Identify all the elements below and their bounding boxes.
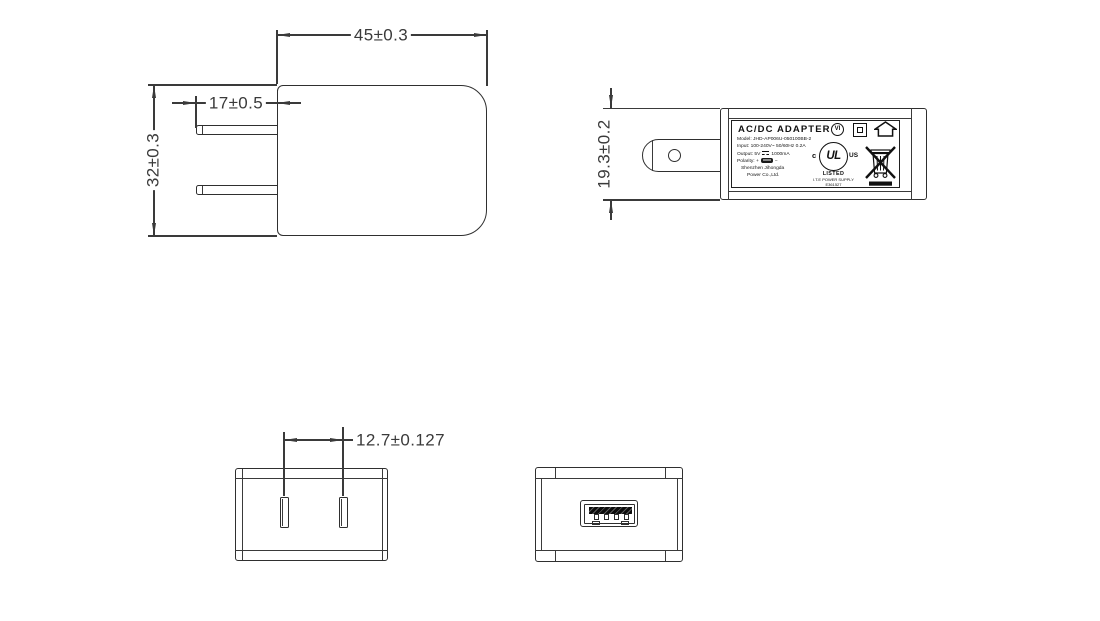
- label-company-line2: Power Co.,Ltd.: [747, 173, 779, 178]
- dimension-text: 12.7±0.127: [353, 432, 448, 449]
- arrowhead-up-icon: [609, 200, 613, 213]
- extension-line: [148, 84, 277, 85]
- case-edge-line: [728, 191, 911, 192]
- extension-line: [283, 432, 284, 496]
- adapter-body-outline: [277, 85, 487, 236]
- arrowhead-right-icon: [330, 438, 343, 442]
- extension-line: [486, 30, 487, 86]
- usb-shell-tab: [592, 521, 600, 525]
- side-prong: [642, 139, 721, 172]
- arrowhead-down-icon: [609, 95, 613, 108]
- right-pin-blade: [339, 497, 348, 528]
- usb-pin: [614, 514, 620, 520]
- upper-prong: [196, 125, 278, 135]
- ul-c-text: c: [812, 151, 816, 160]
- cap-notch: [555, 468, 556, 479]
- upper-prong-tip-line: [202, 126, 203, 134]
- usb-shell-tab: [621, 521, 629, 525]
- left-pin-blade: [280, 497, 289, 528]
- ul-file-number: E361527: [815, 182, 852, 187]
- dimension-text: 45±0.3: [351, 27, 411, 44]
- label-model-line: Model: JHD-AP006U-050100BB-2: [737, 137, 811, 142]
- extension-line: [276, 30, 277, 84]
- dimension-text: 32±0.3: [144, 130, 161, 190]
- prong-cap-seam: [652, 140, 653, 171]
- blade-edge-line: [341, 499, 342, 527]
- end-cap-line: [235, 550, 388, 551]
- label-company-line1: Shenzhen Jihongda: [741, 166, 784, 171]
- weee-bin-icon: [862, 143, 899, 187]
- dc-symbol-icon: [762, 151, 769, 155]
- arrowhead-left-icon: [284, 438, 297, 442]
- arrowhead-right-icon: [474, 33, 487, 37]
- cap-notch: [665, 468, 666, 479]
- rating-label: AC/DC ADAPTER Model: JHD-AP006U-050100BB…: [731, 120, 900, 188]
- polarity-plus: +: [756, 158, 759, 163]
- case-seam: [382, 469, 383, 560]
- ul-us-text: US: [849, 152, 858, 159]
- label-input-line: Input: 100-240V~ 50/60Hz 0.2A: [737, 144, 806, 149]
- label-output-prefix: Output: 5V: [737, 152, 760, 157]
- case-edge-line: [728, 118, 911, 119]
- label-polarity-prefix: Polarity:: [737, 158, 755, 163]
- arrowhead-up-icon: [152, 85, 156, 98]
- arrowhead-left-icon: [277, 33, 290, 37]
- dimension-text: 17±0.5: [206, 95, 266, 112]
- case-seam: [677, 478, 678, 550]
- end-cap-line: [535, 478, 683, 479]
- cap-notch: [555, 550, 556, 561]
- usb-pin: [594, 514, 600, 520]
- arrowhead-right-icon: [183, 101, 196, 105]
- label-output-line: Output: 5V1000mA: [737, 151, 790, 157]
- ul-listed-text: LISTED: [818, 171, 849, 177]
- label-polarity-line: Polarity: +−: [737, 158, 778, 164]
- prong-hole: [668, 149, 681, 162]
- extension-line: [603, 199, 720, 200]
- class-ii-icon: [853, 123, 867, 137]
- lower-prong: [196, 185, 278, 195]
- blade-edge-line: [282, 499, 283, 527]
- arrowhead-down-icon: [152, 223, 156, 236]
- usb-pin: [624, 514, 630, 520]
- label-output-suffix: 1000mA: [771, 152, 789, 157]
- label-title: AC/DC ADAPTER: [738, 124, 831, 135]
- extension-line: [603, 108, 720, 109]
- cap-notch: [665, 550, 666, 561]
- usb-pin: [604, 514, 610, 520]
- ul-listed-icon: UL: [819, 142, 848, 171]
- indoor-use-house-icon: [874, 121, 897, 137]
- class-ii-inner-square: [857, 127, 863, 133]
- case-seam: [541, 478, 542, 550]
- dimension-text: 19.3±0.2: [596, 116, 613, 191]
- polarity-minus: −: [775, 158, 778, 163]
- technical-drawing: 45±0.3 17±0.5 32±0.3: [0, 0, 1100, 621]
- efficiency-vi-icon: VI: [831, 123, 844, 136]
- case-seam: [911, 108, 912, 200]
- arrowhead-left-icon: [277, 101, 290, 105]
- lower-prong-tip-line: [202, 186, 203, 194]
- end-cap-line: [235, 478, 388, 479]
- case-seam: [242, 469, 243, 560]
- adapter-front-outline: [235, 468, 388, 561]
- case-seam: [728, 108, 729, 200]
- usb-plug-icon: [761, 158, 773, 163]
- end-cap-line: [535, 550, 683, 551]
- extension-line: [148, 235, 277, 236]
